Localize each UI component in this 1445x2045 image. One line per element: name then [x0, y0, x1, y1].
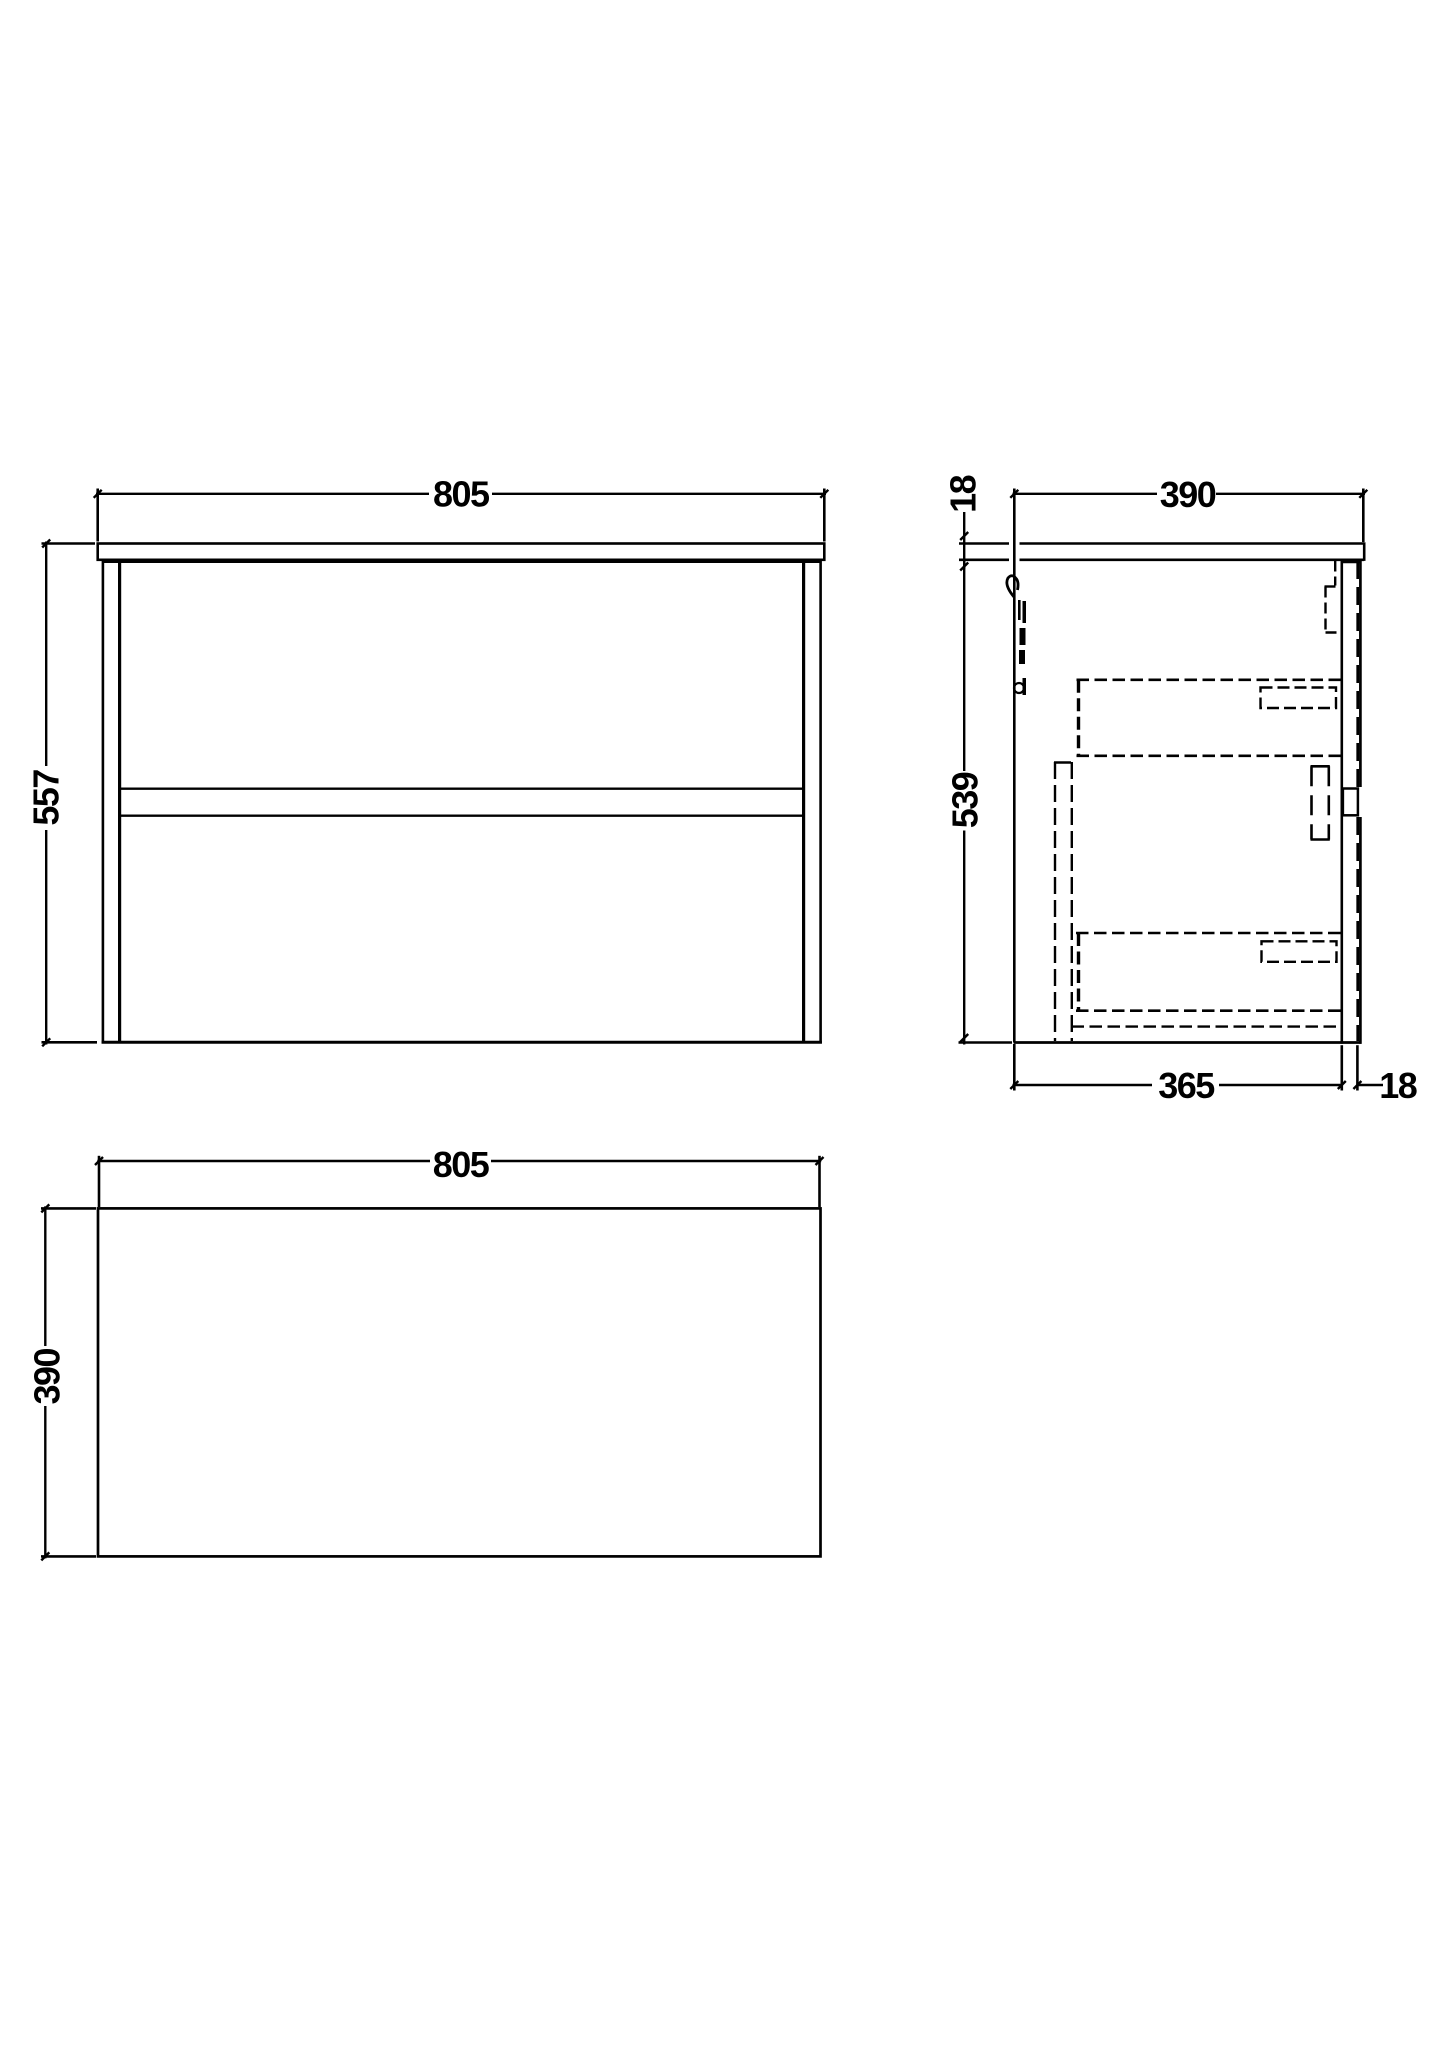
svg-text:390: 390	[27, 1348, 68, 1404]
svg-text:805: 805	[433, 1144, 490, 1185]
svg-text:390: 390	[1160, 474, 1216, 515]
svg-text:539: 539	[945, 772, 986, 828]
svg-text:18: 18	[1379, 1065, 1417, 1106]
svg-text:557: 557	[26, 770, 67, 826]
svg-text:365: 365	[1158, 1065, 1215, 1106]
svg-text:805: 805	[433, 474, 490, 515]
svg-text:18: 18	[943, 475, 984, 513]
